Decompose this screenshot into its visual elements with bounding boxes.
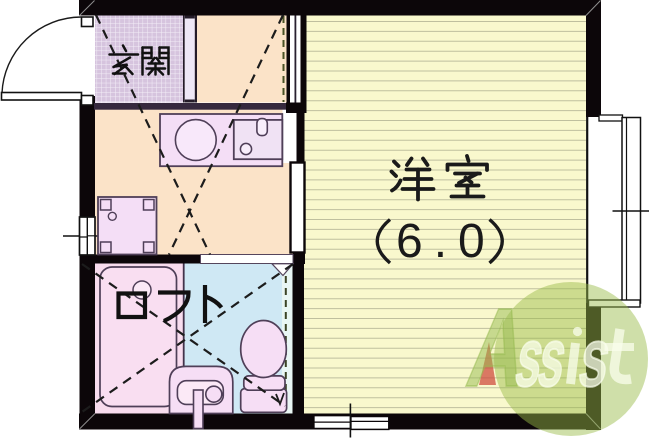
svg-text:6.0: 6.0 [396, 215, 496, 268]
